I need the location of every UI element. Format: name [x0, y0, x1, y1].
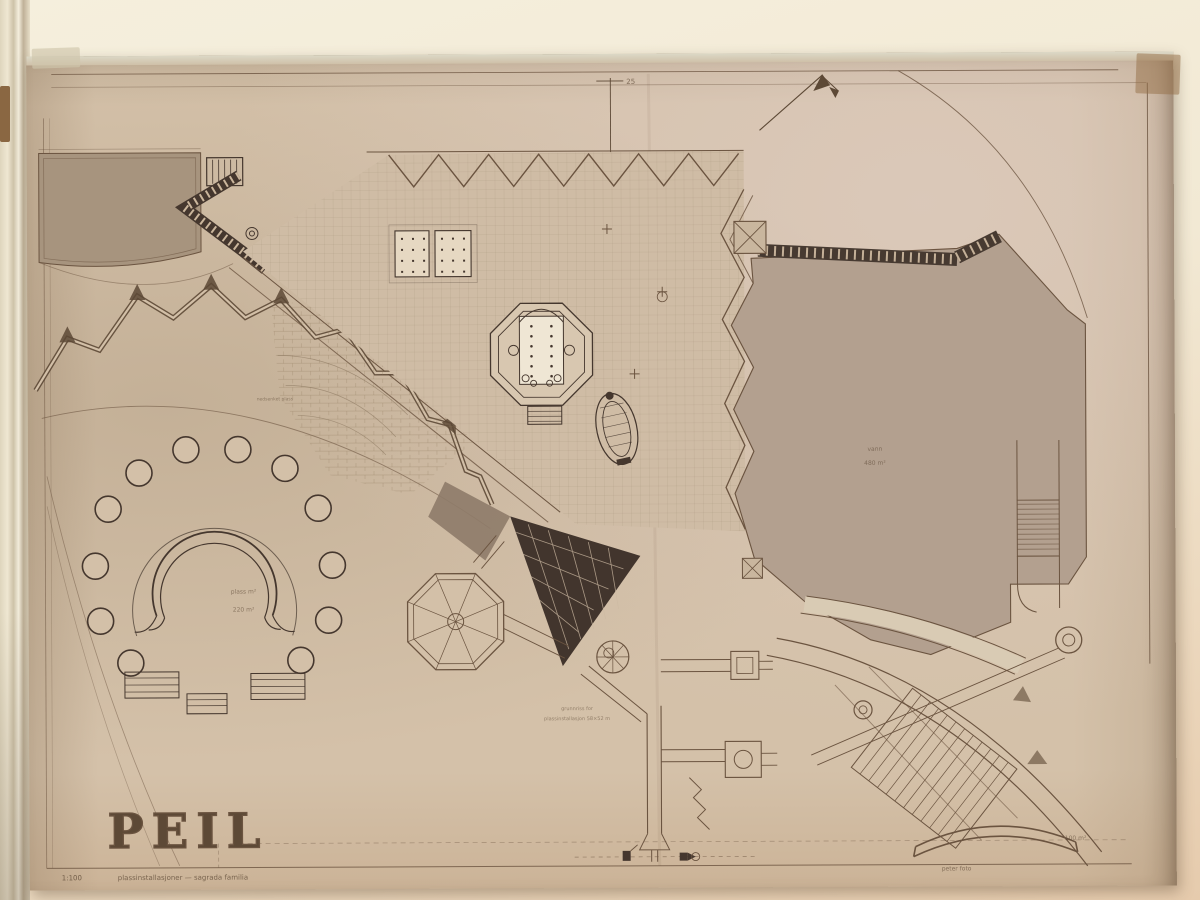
- dimension-label: 25: [626, 78, 635, 86]
- drawing-sheet: 25: [26, 52, 1177, 891]
- detail-note-1: grunnriss for: [561, 706, 594, 712]
- site-plan-svg: 25: [26, 52, 1177, 891]
- tape-top-left: [32, 47, 81, 69]
- left-court-label-2: 220 m²: [233, 607, 255, 614]
- wall-frame-edge: [0, 0, 30, 900]
- south-complex: grunnriss for plassinstallasjon 58×52 m: [407, 480, 778, 863]
- north-arrow: [759, 75, 838, 130]
- title-stamp: PEIL: [107, 803, 268, 860]
- detail-note-2: plassinstallasjon 58×52 m: [544, 716, 610, 722]
- wood-patch: [0, 86, 10, 142]
- footer-text: plassinstallasjoner — sagrada familia: [118, 874, 248, 883]
- sunken-court-note: nedsenket plass: [257, 396, 294, 402]
- horseshoe-court: plass m² 220 m²: [82, 436, 346, 714]
- east-plaza-label-1: vann: [867, 446, 882, 453]
- southeast-roads: 100 m²: [767, 595, 1102, 867]
- tape-top-right: [1135, 53, 1180, 95]
- footer-credit: peter foto: [942, 865, 972, 872]
- east-plaza: vann 480 m²: [731, 220, 1087, 656]
- east-plaza-label-2: 480 m²: [864, 460, 886, 467]
- footer-scale: 1:100: [62, 874, 82, 882]
- southeast-area-label: 100 m²: [1065, 835, 1087, 842]
- left-court-label-1: plass m²: [231, 589, 257, 596]
